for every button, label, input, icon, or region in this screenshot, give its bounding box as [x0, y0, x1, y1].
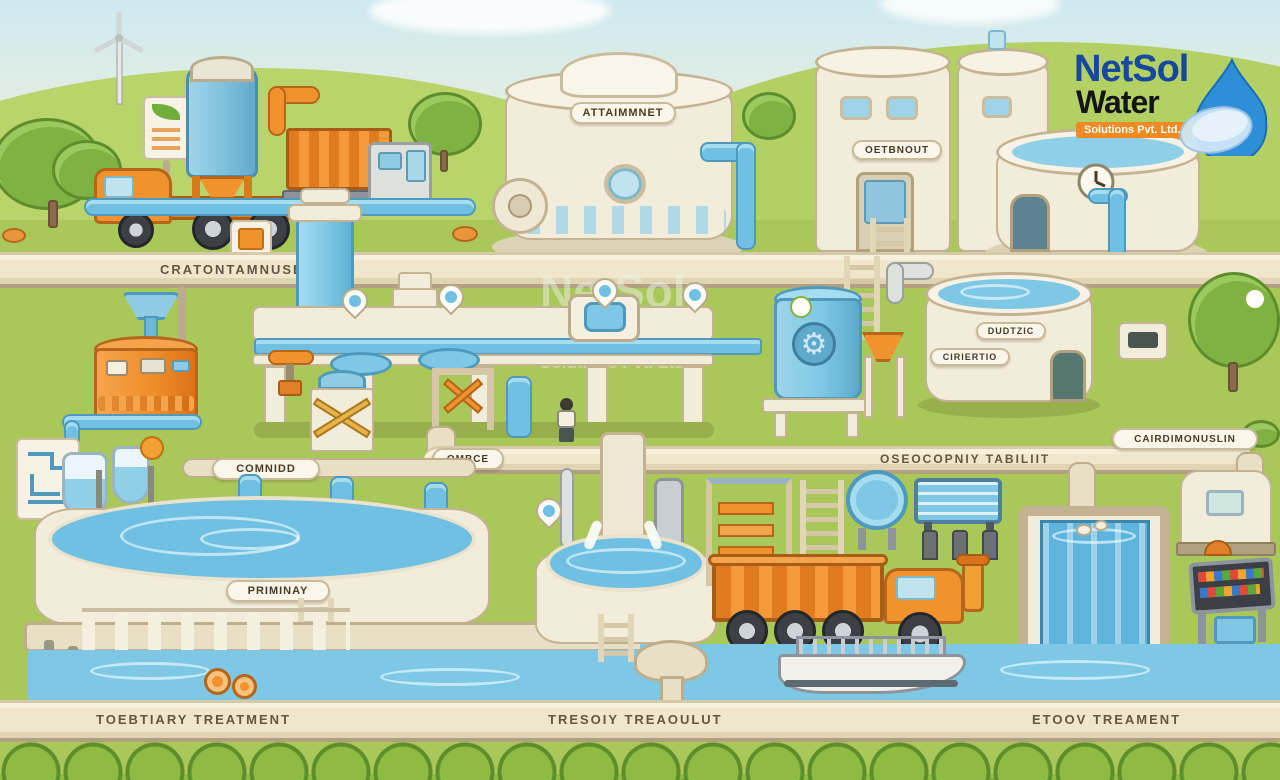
side-pod-gauge — [508, 194, 532, 218]
eco-sign-lines — [152, 128, 180, 150]
truck-wheel — [118, 212, 154, 248]
orange-digester-rib — [98, 396, 194, 411]
mid-basin-label-upper: DUDTZIC — [976, 322, 1046, 340]
hydrant-pipe — [962, 560, 984, 612]
illustration-canvas: ATTAIMMNET OETBNOUT NetSol Water Solutio… — [0, 0, 1280, 780]
right-tank-b-vent — [988, 30, 1006, 50]
blue-column-cap2 — [300, 188, 350, 204]
fountain-ladder — [598, 614, 634, 662]
orange-rock — [452, 226, 478, 242]
pin-dot-icon — [599, 285, 611, 297]
right-tank-a-window — [840, 96, 872, 120]
wind-turbine — [85, 10, 155, 110]
water-swirl — [380, 668, 520, 686]
barrel-leg — [774, 412, 787, 438]
worker-legs — [559, 428, 574, 442]
pin-dot-icon — [445, 291, 457, 303]
right-tank-a-rim — [815, 46, 951, 78]
right-tank-a-stairs — [870, 218, 910, 254]
kiosk-bin — [1214, 616, 1256, 644]
right-sign: CAIRDIMONUSLIN — [1112, 428, 1258, 450]
bush-row — [0, 738, 1280, 780]
uv-disc-leg — [888, 528, 896, 550]
control-panel — [914, 478, 1002, 524]
pin-dot-icon — [349, 295, 361, 307]
right-sign-text: CAIRDIMONUSLIN — [1134, 434, 1236, 445]
gallery-beam — [252, 306, 714, 342]
right-channel-water — [640, 644, 1280, 704]
blue-pipe-column — [506, 376, 532, 438]
round-tank-door — [1010, 194, 1050, 252]
tanker-cylinder — [186, 66, 258, 178]
bottom-band-center-label: TRESOIY TREAOULUT — [548, 712, 723, 727]
basin-inlet-down — [886, 262, 904, 304]
clarifier-pipe-sign: COMNIDD — [212, 458, 320, 480]
tree-trunk — [1228, 362, 1238, 392]
logo-tagline: Solutions Pvt. Ltd. — [1076, 122, 1189, 138]
right-band-label: OSEOCOPNIY TABILIIT — [880, 452, 1050, 466]
water-drop-icon — [1174, 56, 1274, 156]
main-tank-dome — [560, 52, 678, 98]
leaf-badge — [1244, 288, 1266, 310]
aeration-slat — [718, 524, 774, 537]
blue-column-cap — [288, 204, 362, 222]
hydrant-cap — [956, 554, 990, 566]
mid-basin-label-upper-text: DUDTZIC — [988, 326, 1035, 336]
tree — [1188, 272, 1280, 368]
barrel-platform — [762, 398, 874, 413]
main-tank-pipe-v — [736, 142, 756, 250]
tree-trunk — [440, 150, 448, 172]
orange-badge — [140, 436, 164, 460]
water-swirl — [200, 528, 300, 550]
primary-clarifier-label-text: PRIMINAY — [248, 585, 309, 597]
main-tank-port — [604, 164, 646, 204]
mid-basin-label-lower: CIRIERTIO — [930, 348, 1010, 366]
pebble — [1094, 520, 1108, 531]
pool-bollards — [82, 608, 350, 652]
leaf-badge — [790, 296, 812, 318]
cone-frame-leg — [864, 356, 873, 418]
kiosk-leg — [1198, 610, 1206, 646]
tanker-leg — [244, 176, 252, 198]
mid-basin-door — [1050, 350, 1086, 402]
mid-basin-label-lower-text: CIRIERTIO — [943, 352, 998, 362]
feed-funnel-pole — [178, 286, 186, 344]
round-tank-pipe-down — [1108, 188, 1126, 258]
life-buoy — [204, 668, 231, 695]
uv-disc — [846, 470, 908, 530]
bottom-band-right-label: ETOOV TREAMENT — [1032, 712, 1181, 727]
worker-body — [557, 410, 576, 428]
pin-dot-icon — [689, 289, 701, 301]
kiosk-leg — [1258, 606, 1266, 642]
netsol-logo: NetSol Water Solutions Pvt. Ltd. — [1062, 48, 1272, 158]
life-buoy — [232, 674, 257, 699]
right-tank-b-window — [982, 96, 1012, 118]
boat-hull-stripe — [784, 680, 958, 687]
valve-box — [278, 380, 302, 396]
intake-channel — [84, 198, 476, 216]
aeration-slat — [718, 502, 774, 515]
valve-handle — [268, 350, 314, 365]
orange-sign-panel — [238, 228, 264, 250]
logo-water: Water — [1076, 84, 1159, 121]
digester-chip — [172, 360, 190, 372]
gallery-water-pipe — [254, 338, 762, 355]
gear-icon: ⚙ — [792, 322, 836, 366]
intake-pipe-down — [268, 86, 286, 136]
water-swirl — [1052, 528, 1136, 544]
x-brace-tank-dome — [318, 370, 366, 390]
digester-chip — [140, 358, 166, 374]
orange-rock — [2, 228, 26, 243]
gallery-shelf — [252, 354, 714, 366]
water-swirl — [960, 284, 1030, 300]
pin-dot-icon — [543, 505, 555, 517]
main-tank-label-text: ATTAIMMNET — [582, 107, 663, 119]
uv-disc-leg — [858, 528, 866, 550]
main-tank-label: ATTAIMMNET — [570, 102, 676, 124]
cone-frame-leg — [896, 356, 905, 418]
dump-truck-bed-rim — [708, 554, 888, 566]
water-swirl — [1000, 660, 1150, 680]
bottom-band-left-label: TOEBTIARY TREATMENT — [96, 712, 291, 727]
bollard — [922, 530, 938, 560]
right-tank-a-label: OETBNOUT — [852, 140, 942, 160]
right-tank-a-label-text: OETBNOUT — [865, 145, 929, 156]
digester-outlet-pipe — [62, 414, 202, 430]
water-swirl — [566, 548, 686, 574]
right-tank-b-rim — [957, 48, 1049, 76]
control-box-screen — [406, 150, 426, 182]
tree — [742, 92, 796, 140]
pebble — [1076, 524, 1092, 536]
truck-window — [104, 176, 134, 198]
dump-truck-window — [896, 576, 936, 600]
water-swirl — [90, 662, 210, 680]
tanker-dome — [190, 56, 254, 82]
tanker-leg — [192, 176, 200, 198]
hut-window — [1206, 490, 1244, 516]
right-road-band — [424, 446, 1250, 474]
bench-slot — [1128, 332, 1158, 348]
digester-chip — [106, 360, 128, 376]
control-box-screen — [378, 152, 402, 170]
tree-trunk — [48, 200, 58, 228]
right-tank-a-window — [886, 96, 918, 120]
barrel-leg — [846, 412, 859, 438]
